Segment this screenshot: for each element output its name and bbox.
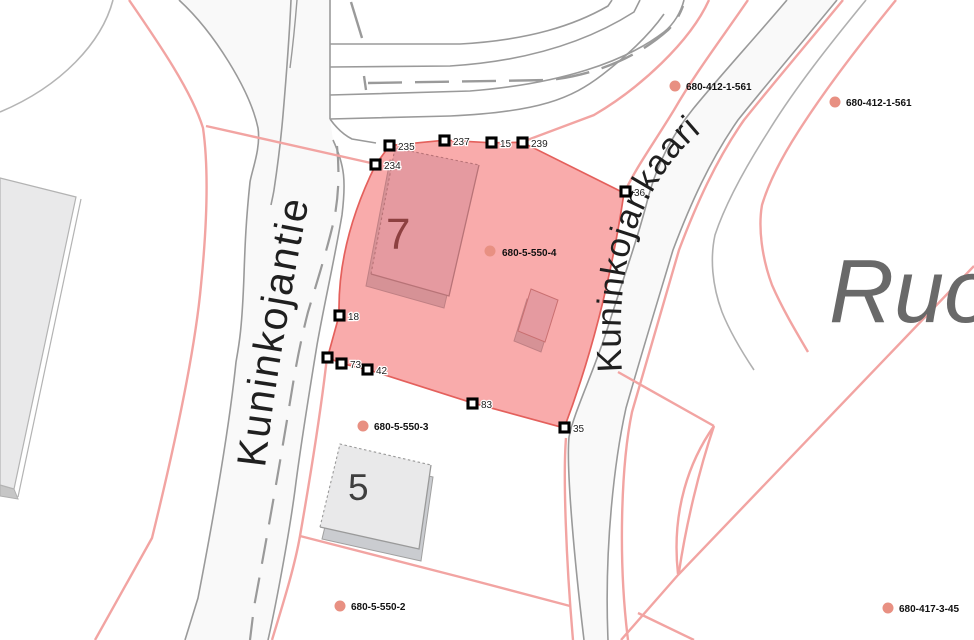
svg-text:680-412-1-561: 680-412-1-561 — [846, 98, 912, 109]
svg-text:15: 15 — [500, 139, 512, 150]
svg-text:680-412-1-561: 680-412-1-561 — [686, 82, 752, 93]
svg-text:235: 235 — [398, 142, 415, 153]
svg-text:680-5-550-2: 680-5-550-2 — [351, 602, 406, 613]
svg-text:36: 36 — [634, 188, 646, 199]
svg-text:680-5-550-3: 680-5-550-3 — [374, 422, 429, 433]
svg-text:73: 73 — [350, 360, 362, 371]
svg-text:237: 237 — [453, 137, 470, 148]
svg-text:680-5-550-4: 680-5-550-4 — [502, 248, 557, 259]
svg-text:680-417-3-45: 680-417-3-45 — [899, 604, 959, 615]
svg-text:239: 239 — [531, 139, 548, 150]
svg-text:7: 7 — [386, 210, 410, 259]
svg-text:Ruo: Ruo — [829, 242, 974, 342]
svg-text:5: 5 — [348, 467, 369, 508]
svg-text:35: 35 — [573, 424, 585, 435]
svg-text:42: 42 — [376, 366, 388, 377]
svg-text:83: 83 — [481, 400, 493, 411]
svg-text:234: 234 — [384, 161, 401, 172]
svg-text:18: 18 — [348, 312, 360, 323]
